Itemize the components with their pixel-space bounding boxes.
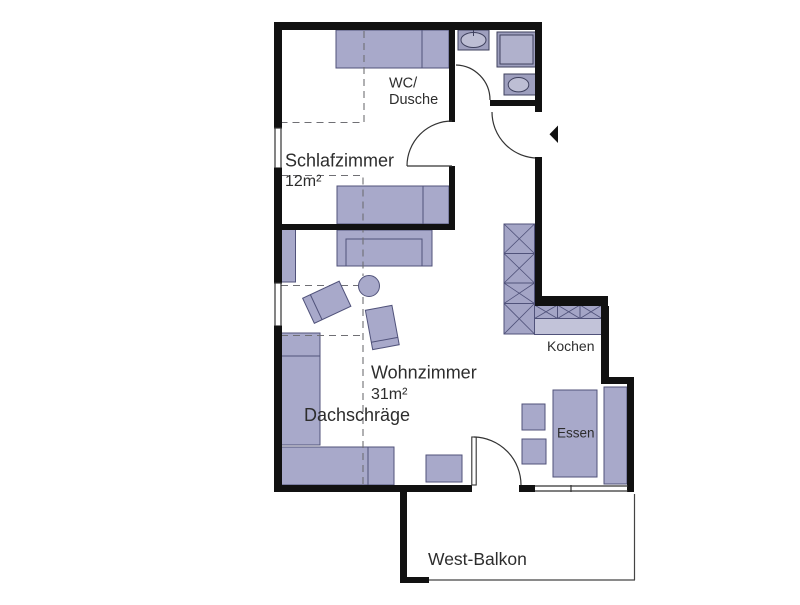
svg-text:Essen: Essen [557, 426, 595, 441]
svg-text:31m²: 31m² [371, 386, 408, 403]
svg-text:West-Balkon: West-Balkon [428, 549, 527, 569]
svg-text:Kochen: Kochen [547, 338, 594, 354]
svg-text:Dusche: Dusche [389, 92, 438, 108]
svg-text:Wohnzimmer: Wohnzimmer [371, 363, 477, 383]
svg-text:WC/: WC/ [389, 76, 418, 92]
svg-text:Schlafzimmer: Schlafzimmer [285, 151, 394, 171]
svg-text:Dachschräge: Dachschräge [304, 405, 410, 425]
svg-text:12m²: 12m² [285, 173, 322, 190]
